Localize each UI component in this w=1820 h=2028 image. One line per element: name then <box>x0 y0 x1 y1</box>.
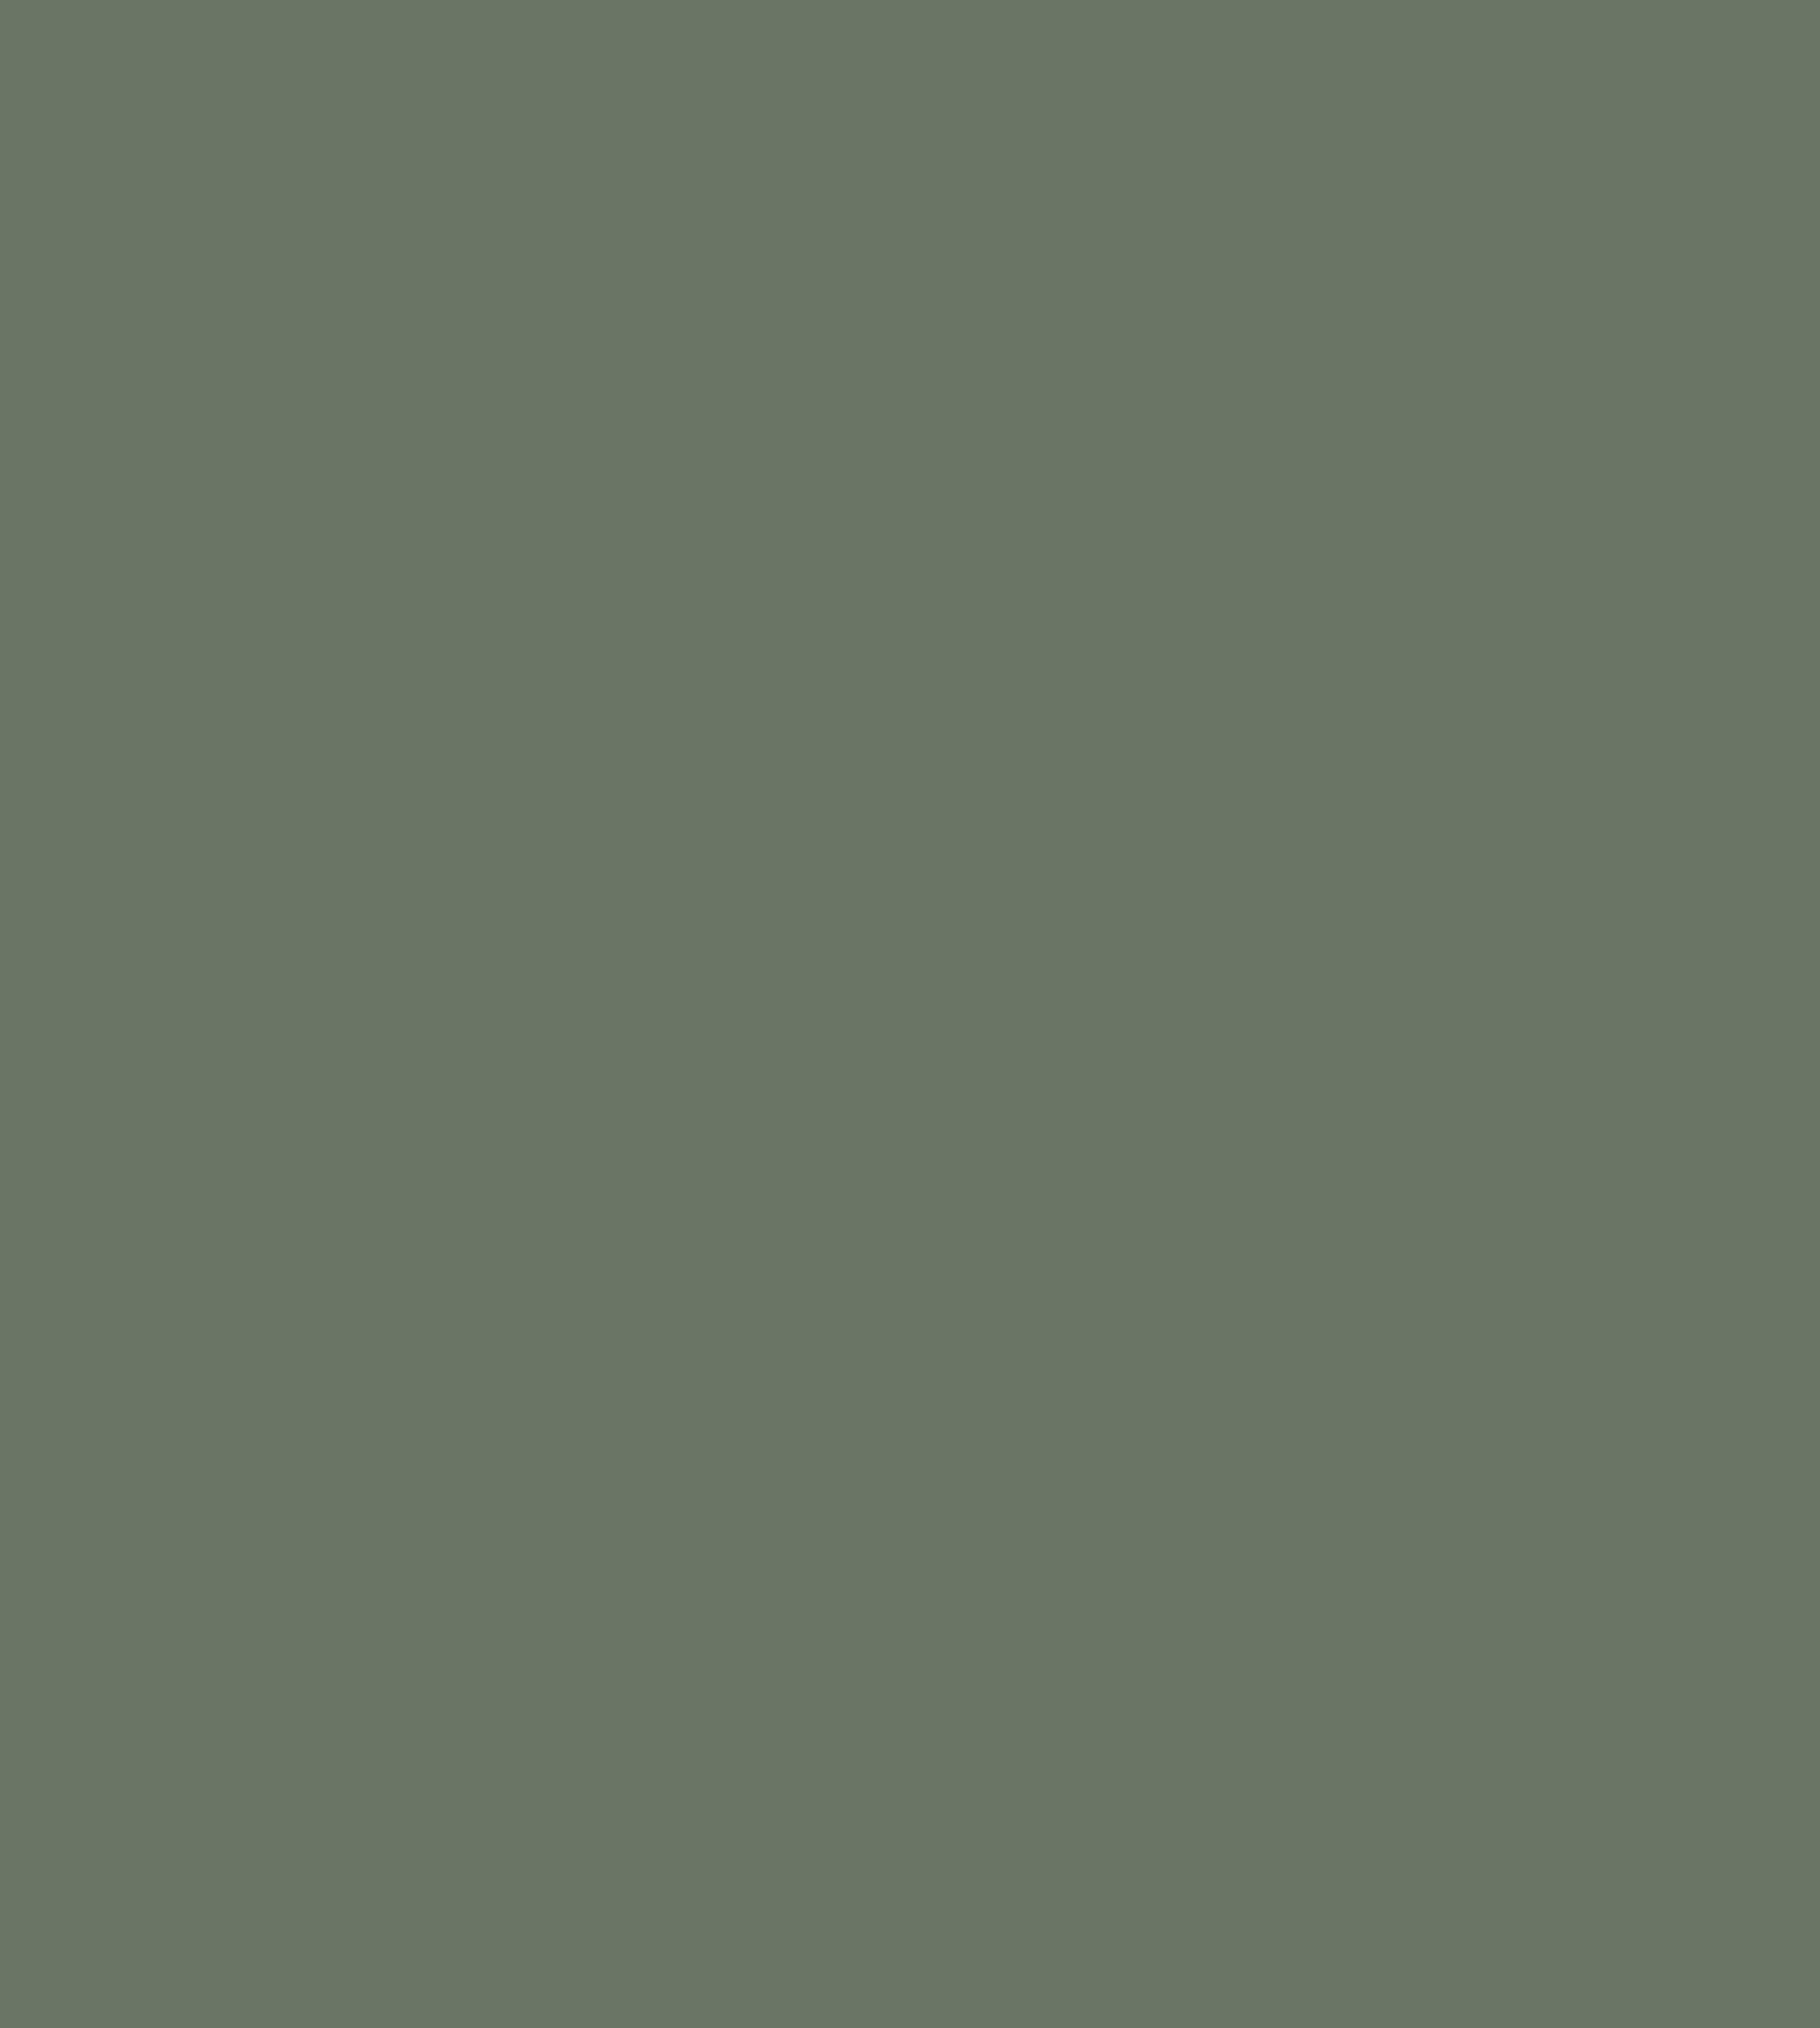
solid-color-background <box>0 0 1820 2028</box>
